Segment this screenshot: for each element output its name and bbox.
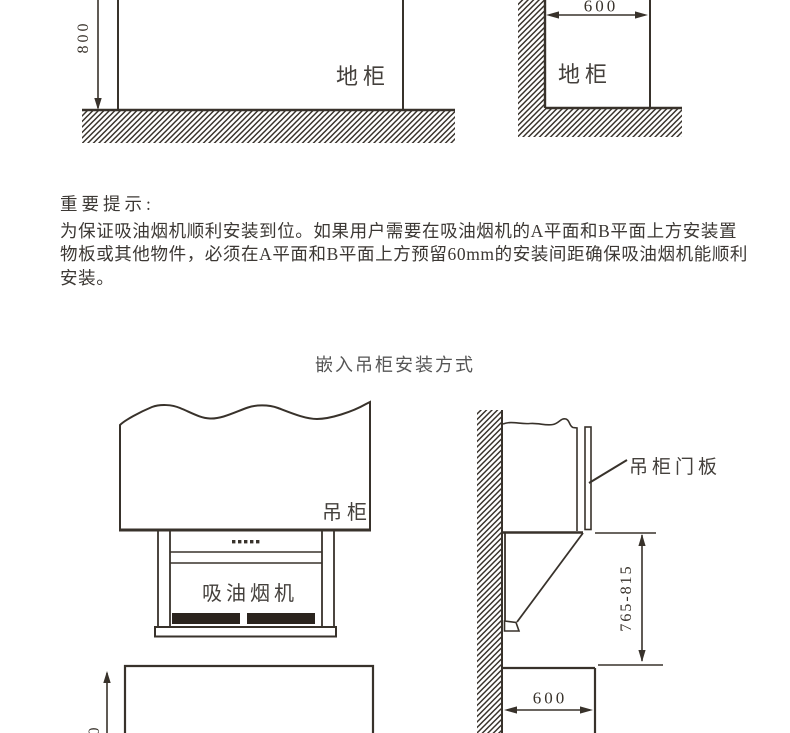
wall-hatch [477, 410, 502, 733]
cabinet-door-panel-label: 吊柜门板 [629, 458, 721, 477]
floor-hatch [82, 110, 455, 143]
hood-side-profile [505, 533, 584, 631]
height-dimension-line-800 [103, 671, 110, 733]
important-notice: 重要提示: 为保证吸油烟机顺利安装到位。如果用户需要在吸油烟机的A平面和B平面上… [60, 193, 760, 290]
wall-hatch [518, 0, 545, 108]
door-panel-leader-line [589, 460, 627, 483]
height-dimension-line-800 [94, 0, 101, 110]
control-buttons-dots-icon [232, 540, 259, 543]
countertop-outline [125, 666, 373, 733]
notice-line-2: 物板或其他物件，必须在A平面和B平面上方预留60mm的安装间距确保吸油烟机能顺利 [60, 243, 760, 267]
base-cabinet-label-left: 地柜 [336, 66, 390, 88]
notice-line-3: 安装。 [60, 267, 760, 291]
arrow-up-icon [638, 534, 645, 546]
section-heading: 嵌入吊柜安装方式 [0, 351, 790, 377]
arrow-down-icon [94, 98, 101, 110]
range-hood-label: 吸油烟机 [202, 584, 298, 604]
front-view-hood-diagram [103, 402, 373, 733]
arrow-left-icon [546, 11, 559, 18]
grease-filters [172, 613, 315, 624]
dimension-label-800-bottom: 800 [87, 725, 103, 733]
base-cabinet-label-right: 地柜 [558, 64, 612, 86]
floor-hatch [518, 108, 682, 137]
hanging-cabinet-label: 吊柜 [322, 503, 372, 523]
arrow-left-icon [504, 706, 517, 713]
notice-line-1: 为保证吸油烟机顺利安装到位。如果用户需要在吸油烟机的A平面和B平面上方安装置 [60, 220, 760, 244]
arrow-up-icon [103, 671, 110, 683]
hood-bottom-lip [155, 627, 336, 637]
arrow-down-icon [638, 650, 645, 662]
hood-body [158, 531, 334, 627]
dimension-label-600-side: 600 [533, 690, 568, 707]
installation-manual-page: 800 地柜 600 地柜 重要提示: 为保证吸油烟机顺利安装到位。如果用户需要… [0, 0, 790, 733]
arrow-right-icon [580, 706, 593, 713]
hanging-cabinet-side-outline [503, 419, 577, 531]
cabinet-door-panel [585, 427, 591, 530]
arrow-right-icon [635, 11, 648, 18]
dimension-label-800-top: 800 [76, 21, 92, 54]
dimension-label-765-815: 765-815 [619, 564, 635, 631]
top-left-base-cabinet-diagram [82, 0, 455, 143]
notice-title: 重要提示: [60, 193, 760, 217]
dimension-label-600-top: 600 [584, 0, 619, 15]
